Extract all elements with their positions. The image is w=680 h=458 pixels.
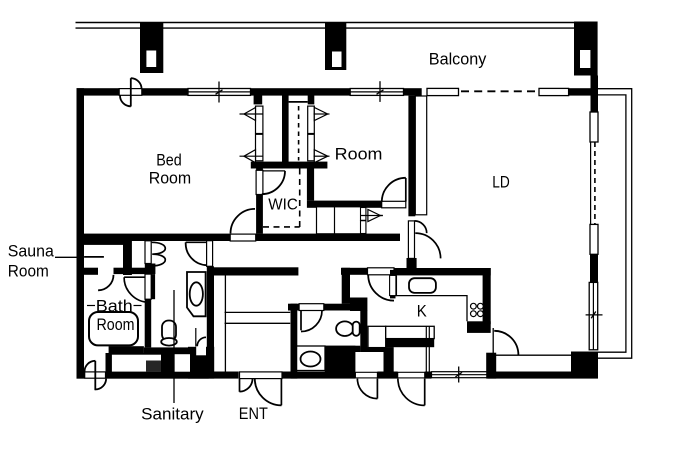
svg-text:ENT: ENT [239,404,268,423]
svg-text:Room: Room [149,169,192,188]
svg-text:Room: Room [97,315,135,334]
svg-text:K: K [417,302,428,321]
svg-text:Balcony: Balcony [429,50,487,69]
svg-text:WIC: WIC [268,197,298,214]
svg-text:Sauna: Sauna [8,242,54,261]
svg-text:Room: Room [8,262,49,281]
svg-text:LD: LD [492,173,510,192]
svg-text:Bath: Bath [96,297,133,316]
svg-text:Room: Room [335,145,383,164]
svg-text:Bed: Bed [156,151,182,170]
svg-text:Sanitary: Sanitary [141,405,204,424]
